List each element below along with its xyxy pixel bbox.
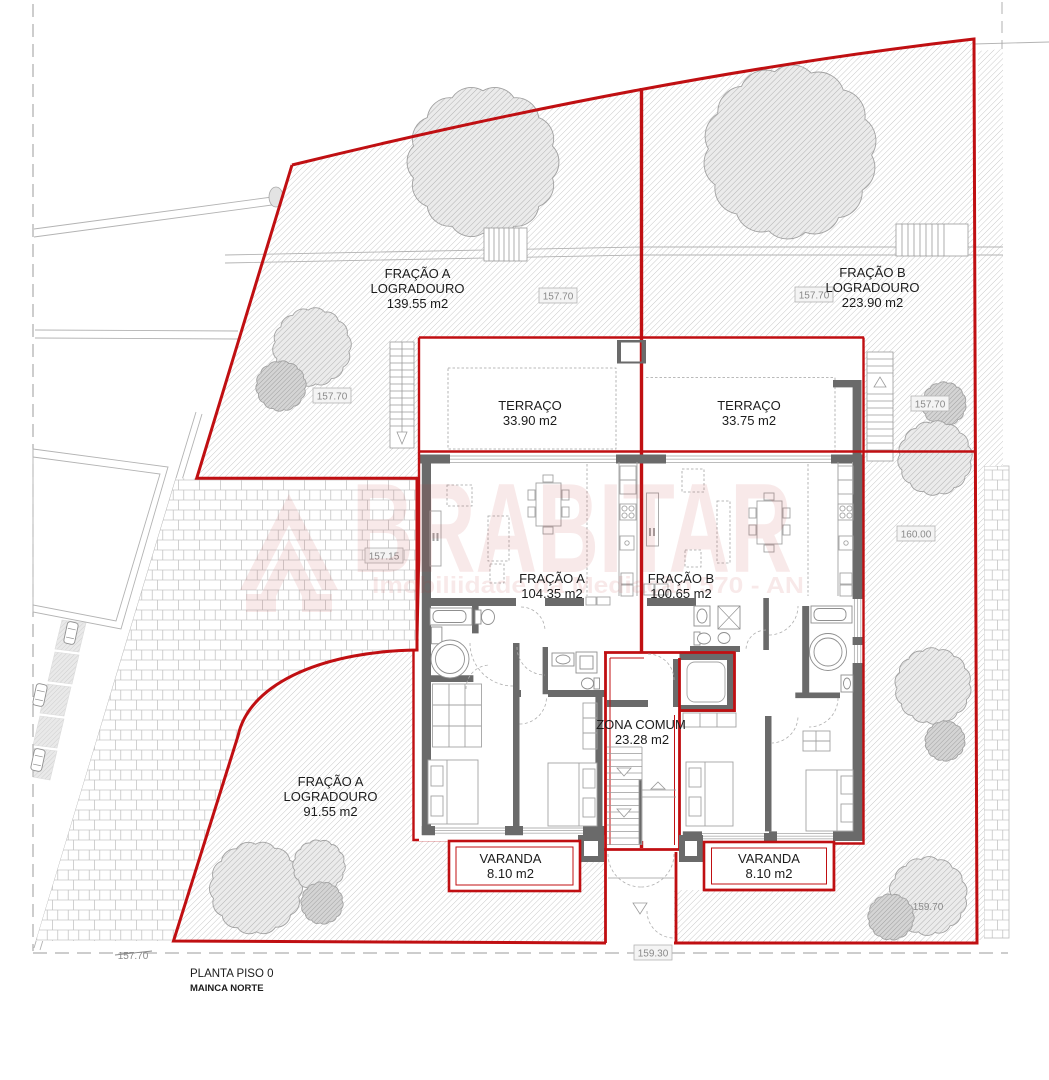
svg-text:ZONA COMUM: ZONA COMUM [596,717,686,732]
svg-text:TERRAÇO: TERRAÇO [498,398,562,413]
svg-text:FRAÇÃO B: FRAÇÃO B [839,265,905,280]
svg-text:FRAÇÃO A: FRAÇÃO A [298,774,364,789]
svg-text:91.55 m2: 91.55 m2 [303,804,357,819]
svg-text:FRAÇÃO A: FRAÇÃO A [519,571,585,586]
svg-text:157.70: 157.70 [317,392,348,403]
svg-text:159.70: 159.70 [913,902,944,913]
svg-text:FRAÇÃO B: FRAÇÃO B [648,571,714,586]
svg-text:160.00: 160.00 [901,530,932,541]
svg-text:159.30: 159.30 [638,949,669,960]
svg-text:33.90 m2: 33.90 m2 [503,413,557,428]
svg-text:LOGRADOURO: LOGRADOURO [371,281,465,296]
svg-text:8.10 m2: 8.10 m2 [487,866,534,881]
svg-text:157.70: 157.70 [915,400,946,411]
svg-text:100.65 m2: 100.65 m2 [650,586,711,601]
svg-text:139.55 m2: 139.55 m2 [387,296,448,311]
svg-text:VARANDA: VARANDA [480,851,542,866]
svg-text:FRAÇÃO A: FRAÇÃO A [385,266,451,281]
svg-text:223.90 m2: 223.90 m2 [842,295,903,310]
svg-text:TERRAÇO: TERRAÇO [717,398,781,413]
svg-text:LOGRADOURO: LOGRADOURO [826,280,920,295]
svg-text:PLANTA PISO 0: PLANTA PISO 0 [190,968,274,980]
svg-text:8.10 m2: 8.10 m2 [746,866,793,881]
svg-text:VARANDA: VARANDA [738,851,800,866]
svg-text:157.70: 157.70 [543,292,574,303]
svg-text:LOGRADOURO: LOGRADOURO [284,789,378,804]
svg-text:23.28 m2: 23.28 m2 [615,732,669,747]
svg-text:Imobiliidade da Mediação 570 -: Imobiliidade da Mediação 570 - AN [372,572,804,598]
svg-text:33.75 m2: 33.75 m2 [722,413,776,428]
svg-text:104.35 m2: 104.35 m2 [521,586,582,601]
svg-text:MAINCA NORTE: MAINCA NORTE [190,983,264,994]
